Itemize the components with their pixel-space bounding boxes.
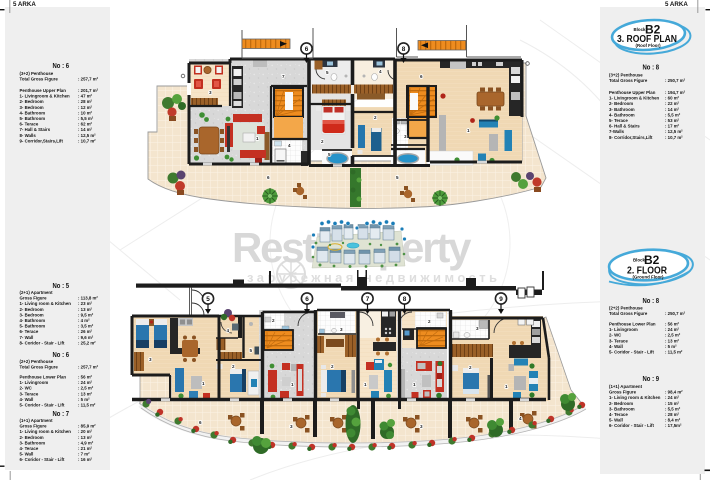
- svg-text:: 14 m²: : 14 m²: [78, 127, 93, 132]
- svg-text:2: 2: [374, 115, 377, 120]
- svg-text:No : 6: No : 6: [53, 61, 70, 70]
- svg-text:4: 4: [379, 69, 382, 74]
- svg-text:: 10,7 m²: : 10,7 m²: [78, 138, 96, 143]
- svg-text:8- Corridor,Stairs,Lift: 8- Corridor,Stairs,Lift: [609, 135, 653, 140]
- svg-text:1- Livingroom & Kitchen: 1- Livingroom & Kitchen: [609, 96, 660, 101]
- svg-text:: 3,5 m²: : 3,5 m²: [78, 324, 94, 329]
- svg-text:6- Terace: 6- Terace: [20, 122, 39, 127]
- svg-text:: 257,7 m²: : 257,7 m²: [78, 77, 99, 82]
- svg-text:4- Wall: 4- Wall: [609, 344, 623, 349]
- svg-text:: 15 m²: : 15 m²: [665, 401, 680, 406]
- svg-text:: 26 m²: : 26 m²: [78, 329, 93, 334]
- svg-text:2- Bedroom: 2- Bedroom: [609, 101, 633, 106]
- svg-text:No : 8: No : 8: [643, 63, 660, 72]
- svg-text:(1+1) Apartment: (1+1) Apartment: [609, 384, 643, 389]
- svg-text:8: 8: [403, 296, 407, 303]
- svg-text:: 201,7 m²: : 201,7 m²: [78, 88, 99, 93]
- svg-text:6: 6: [267, 175, 270, 180]
- svg-text:6- Hall & Stairs: 6- Hall & Stairs: [609, 124, 640, 129]
- svg-text:: 5,5 m²: : 5,5 m²: [665, 406, 681, 411]
- svg-text:3: 3: [290, 424, 293, 429]
- svg-text:: 10 m²: : 10 m²: [78, 110, 93, 115]
- svg-text:7: 7: [282, 74, 285, 79]
- svg-text:9- Corridor,Stairs,Lift: 9- Corridor,Stairs,Lift: [20, 138, 64, 143]
- svg-text:: 5 m²: : 5 m²: [665, 344, 677, 349]
- svg-text:2- WC: 2- WC: [609, 333, 622, 338]
- svg-text:: 25,2 m²: : 25,2 m²: [78, 340, 96, 345]
- svg-text:: 13 m²: : 13 m²: [78, 391, 93, 396]
- svg-text:No : 6: No : 6: [53, 350, 70, 359]
- svg-text:: 9,5 m²: : 9,5 m²: [78, 312, 94, 317]
- svg-text:: 47 m²: : 47 m²: [78, 94, 93, 99]
- svg-text:: 4,9 m²: : 4,9 m²: [78, 440, 94, 445]
- svg-text:6- Coridor - Stair - Lift: 6- Coridor - Stair - Lift: [20, 457, 65, 462]
- svg-text:4- Wall: 4- Wall: [20, 397, 34, 402]
- svg-text:1- Living room & Kitchen: 1- Living room & Kitchen: [20, 301, 72, 306]
- svg-text:: 28 m²: : 28 m²: [78, 99, 93, 104]
- svg-text:3- Bathroom: 3- Bathroom: [20, 440, 46, 445]
- svg-text:5- Wall: 5- Wall: [609, 418, 623, 423]
- svg-text:No : 5: No : 5: [53, 281, 70, 290]
- svg-text:: 257,7 m²: : 257,7 m²: [78, 365, 99, 370]
- svg-text:2- Bedroom: 2- Bedroom: [20, 307, 44, 312]
- svg-text:6: 6: [305, 46, 309, 53]
- svg-text:3- Terace: 3- Terace: [20, 391, 39, 396]
- svg-text:1- Livingroom & Kitchen: 1- Livingroom & Kitchen: [20, 94, 71, 99]
- svg-text:: 250,7 m²: : 250,7 m²: [665, 311, 686, 316]
- svg-text:: 17 m²: : 17 m²: [665, 124, 680, 129]
- svg-text:(Ground Floor): (Ground Floor): [633, 275, 665, 280]
- svg-text:1: 1: [413, 382, 416, 387]
- svg-text:: 194,7 m²: : 194,7 m²: [665, 90, 686, 95]
- svg-text:: 12,5 m²: : 12,5 m²: [665, 129, 683, 134]
- svg-text:Penthouse Lower Plan: Penthouse Lower Plan: [20, 375, 67, 380]
- svg-text:: 8,4 m²: : 8,4 m²: [665, 418, 681, 423]
- svg-text:6: 6: [420, 74, 423, 79]
- svg-text:: 13 m²: : 13 m²: [78, 435, 93, 440]
- svg-text:2- Bedroom: 2- Bedroom: [20, 99, 44, 104]
- svg-text:5- Wall: 5- Wall: [20, 452, 34, 457]
- svg-text:7- Hall & Stairs: 7- Hall & Stairs: [20, 127, 51, 132]
- svg-text:(1+1) Apartment: (1+1) Apartment: [20, 418, 54, 423]
- svg-text:5- Coridor - Stair - Lift: 5- Coridor - Stair - Lift: [20, 403, 65, 408]
- svg-text:3: 3: [209, 90, 212, 95]
- svg-text:5 ARKA: 5 ARKA: [665, 1, 688, 8]
- svg-text:2: 2: [272, 318, 275, 323]
- svg-text:3: 3: [476, 326, 479, 331]
- svg-text:8- Coridor - Stair - Lift: 8- Coridor - Stair - Lift: [20, 340, 65, 345]
- svg-text:5- Bathroom: 5- Bathroom: [20, 116, 46, 121]
- svg-text:8- Walls: 8- Walls: [20, 133, 37, 138]
- svg-text:2: 2: [321, 139, 324, 144]
- svg-text:3: 3: [149, 357, 152, 362]
- svg-text:Gross Figure: Gross Figure: [20, 424, 48, 429]
- svg-text:1: 1: [291, 382, 294, 387]
- svg-text:1- Livingroom: 1- Livingroom: [20, 380, 49, 385]
- svg-text:3: 3: [420, 424, 423, 429]
- svg-text:3: 3: [340, 327, 343, 332]
- svg-text:: 14 m²: : 14 m²: [665, 107, 680, 112]
- svg-text:3- Bedroom: 3- Bedroom: [20, 105, 44, 110]
- svg-text:1: 1: [256, 136, 259, 141]
- svg-text:Penthouse Lower Plan: Penthouse Lower Plan: [609, 322, 656, 327]
- svg-text:Penthouse Upper Plan: Penthouse Upper Plan: [20, 88, 67, 93]
- svg-text:2: 2: [232, 364, 235, 369]
- svg-text:Penthouse Upper Plan: Penthouse Upper Plan: [609, 90, 656, 95]
- svg-text:: 85,9 m²: : 85,9 m²: [78, 424, 96, 429]
- svg-text:4: 4: [519, 416, 522, 421]
- svg-text:Total Gross Figure: Total Gross Figure: [609, 78, 648, 83]
- svg-text:: 5,5 m²: : 5,5 m²: [78, 116, 94, 121]
- svg-text:6: 6: [305, 296, 309, 303]
- svg-text:: 98,4 m²: : 98,4 m²: [665, 390, 683, 395]
- svg-text:Total Gross Figure: Total Gross Figure: [609, 311, 648, 316]
- svg-text:: 113,8 m²: : 113,8 m²: [78, 296, 98, 301]
- svg-text:Total Gross Figure: Total Gross Figure: [20, 77, 59, 82]
- svg-text:(2+2) Penthouse: (2+2) Penthouse: [609, 306, 643, 311]
- svg-text:Gross Figure: Gross Figure: [20, 296, 48, 301]
- svg-text:5- Terace: 5- Terace: [609, 118, 628, 123]
- svg-text:5: 5: [396, 175, 399, 180]
- svg-text:: 7 m²: : 7 m²: [78, 452, 90, 457]
- svg-text:3- Bathroom: 3- Bathroom: [609, 107, 635, 112]
- svg-text:: 28 m²: : 28 m²: [665, 412, 680, 417]
- svg-text:: 11,5 m²: : 11,5 m²: [665, 350, 683, 355]
- svg-text:7: 7: [366, 296, 370, 303]
- svg-text:No : 7: No : 7: [53, 409, 70, 418]
- svg-text:(Roof Floor): (Roof Floor): [636, 43, 662, 48]
- svg-text:5: 5: [206, 296, 210, 303]
- svg-text:: 22 m²: : 22 m²: [665, 101, 680, 106]
- svg-text:: 16 m²: : 16 m²: [78, 457, 93, 462]
- svg-text:3- Bathroom: 3- Bathroom: [609, 406, 635, 411]
- svg-text:зарубежная недвижимость: зарубежная недвижимость: [247, 270, 499, 285]
- svg-text:No : 8: No : 8: [643, 296, 660, 305]
- svg-text:: 62 m²: : 62 m²: [78, 122, 93, 127]
- svg-text:1- Living room & Kitchen: 1- Living room & Kitchen: [20, 429, 72, 434]
- svg-text:: 20 m²: : 20 m²: [78, 429, 93, 434]
- svg-text:4- Bathroom: 4- Bathroom: [20, 318, 46, 323]
- svg-text:Gross Figure: Gross Figure: [609, 390, 637, 395]
- svg-text:: 11,5 m²: : 11,5 m²: [78, 403, 96, 408]
- svg-text:: 23 m²: : 23 m²: [78, 301, 93, 306]
- svg-text:3- Bedroom: 3- Bedroom: [20, 312, 44, 317]
- svg-text:1: 1: [467, 128, 470, 133]
- svg-text:: 9,6 m²: : 9,6 m²: [78, 335, 94, 340]
- svg-text:2- Bedroom: 2- Bedroom: [20, 435, 44, 440]
- svg-text:5: 5: [328, 152, 331, 157]
- svg-text:: 2,5 m²: : 2,5 m²: [665, 333, 681, 338]
- svg-text:4- Terace: 4- Terace: [609, 412, 628, 417]
- svg-text:2: 2: [331, 364, 334, 369]
- svg-text:: 12,5 m²: : 12,5 m²: [78, 133, 96, 138]
- svg-text:5 ARKA: 5 ARKA: [13, 1, 36, 8]
- svg-text:4: 4: [288, 143, 291, 148]
- svg-text:: 17,5m²: : 17,5m²: [665, 423, 682, 428]
- svg-text:8: 8: [402, 46, 406, 53]
- svg-text:: 56 m²: : 56 m²: [665, 322, 680, 327]
- svg-text:5- Bathroom: 5- Bathroom: [20, 324, 46, 329]
- svg-text:: 250,7 m²: : 250,7 m²: [665, 78, 686, 83]
- svg-text:6: 6: [199, 420, 202, 425]
- svg-text:7-Walls: 7-Walls: [609, 129, 625, 134]
- svg-text:4- Bathroom: 4- Bathroom: [609, 112, 635, 117]
- svg-text:: 4 m²: : 4 m²: [78, 318, 90, 323]
- svg-text:5: 5: [250, 348, 253, 353]
- svg-text:: 56 m²: : 56 m²: [78, 375, 93, 380]
- svg-text:(2+1) Apartment: (2+1) Apartment: [20, 290, 54, 295]
- svg-text:2- WC: 2- WC: [20, 386, 33, 391]
- svg-text:: 53 m²: : 53 m²: [665, 118, 680, 123]
- svg-text:5- Coridor - Stair - Lift: 5- Coridor - Stair - Lift: [609, 350, 654, 355]
- svg-text:4: 4: [227, 328, 230, 333]
- svg-text:: 24 m²: : 24 m²: [665, 395, 680, 400]
- svg-text:: 5 m²: : 5 m²: [78, 397, 90, 402]
- svg-text:9: 9: [499, 296, 503, 303]
- svg-text:: 24 m²: : 24 m²: [78, 380, 93, 385]
- svg-text:: 13 m²: : 13 m²: [78, 307, 93, 312]
- svg-text:6- Terace: 6- Terace: [20, 329, 39, 334]
- svg-text:: 5,5 m²: : 5,5 m²: [665, 112, 681, 117]
- svg-text:: 21 m²: : 21 m²: [78, 446, 93, 451]
- svg-text:(2+2) Penthouse: (2+2) Penthouse: [20, 359, 54, 364]
- svg-text:4- Bathroom: 4- Bathroom: [20, 110, 46, 115]
- svg-text:: 2,5 m²: : 2,5 m²: [78, 386, 94, 391]
- svg-text:2- Bedroom: 2- Bedroom: [609, 401, 633, 406]
- svg-text:6- Coridor - Stair - Lift: 6- Coridor - Stair - Lift: [609, 423, 654, 428]
- svg-text:No : 9: No : 9: [643, 374, 660, 383]
- svg-text:: 24 m²: : 24 m²: [665, 327, 680, 332]
- svg-text:(3+2) Penthouse: (3+2) Penthouse: [609, 73, 643, 78]
- svg-text:2: 2: [469, 365, 472, 370]
- svg-text:: 10,7 m²: : 10,7 m²: [665, 135, 683, 140]
- svg-text:: 60 m²: : 60 m²: [665, 96, 680, 101]
- svg-text:5: 5: [326, 70, 329, 75]
- svg-text:1: 1: [364, 382, 367, 387]
- svg-text:: 13 m²: : 13 m²: [665, 338, 680, 343]
- svg-text:2: 2: [428, 319, 431, 324]
- svg-text:: 12 m²: : 12 m²: [78, 105, 93, 110]
- svg-text:7- Wall: 7- Wall: [20, 335, 34, 340]
- svg-text:(3+2) Penthouse: (3+2) Penthouse: [20, 71, 54, 76]
- svg-text:3: 3: [404, 134, 407, 139]
- svg-text:1: 1: [202, 381, 205, 386]
- svg-text:Total Gross Figure: Total Gross Figure: [20, 365, 59, 370]
- svg-text:1: 1: [505, 384, 508, 389]
- svg-text:1- Living room & Kitchen: 1- Living room & Kitchen: [609, 395, 661, 400]
- svg-text:1- Livingroom: 1- Livingroom: [609, 327, 638, 332]
- svg-text:3- Terace: 3- Terace: [609, 338, 628, 343]
- svg-text:4- Terace: 4- Terace: [20, 446, 39, 451]
